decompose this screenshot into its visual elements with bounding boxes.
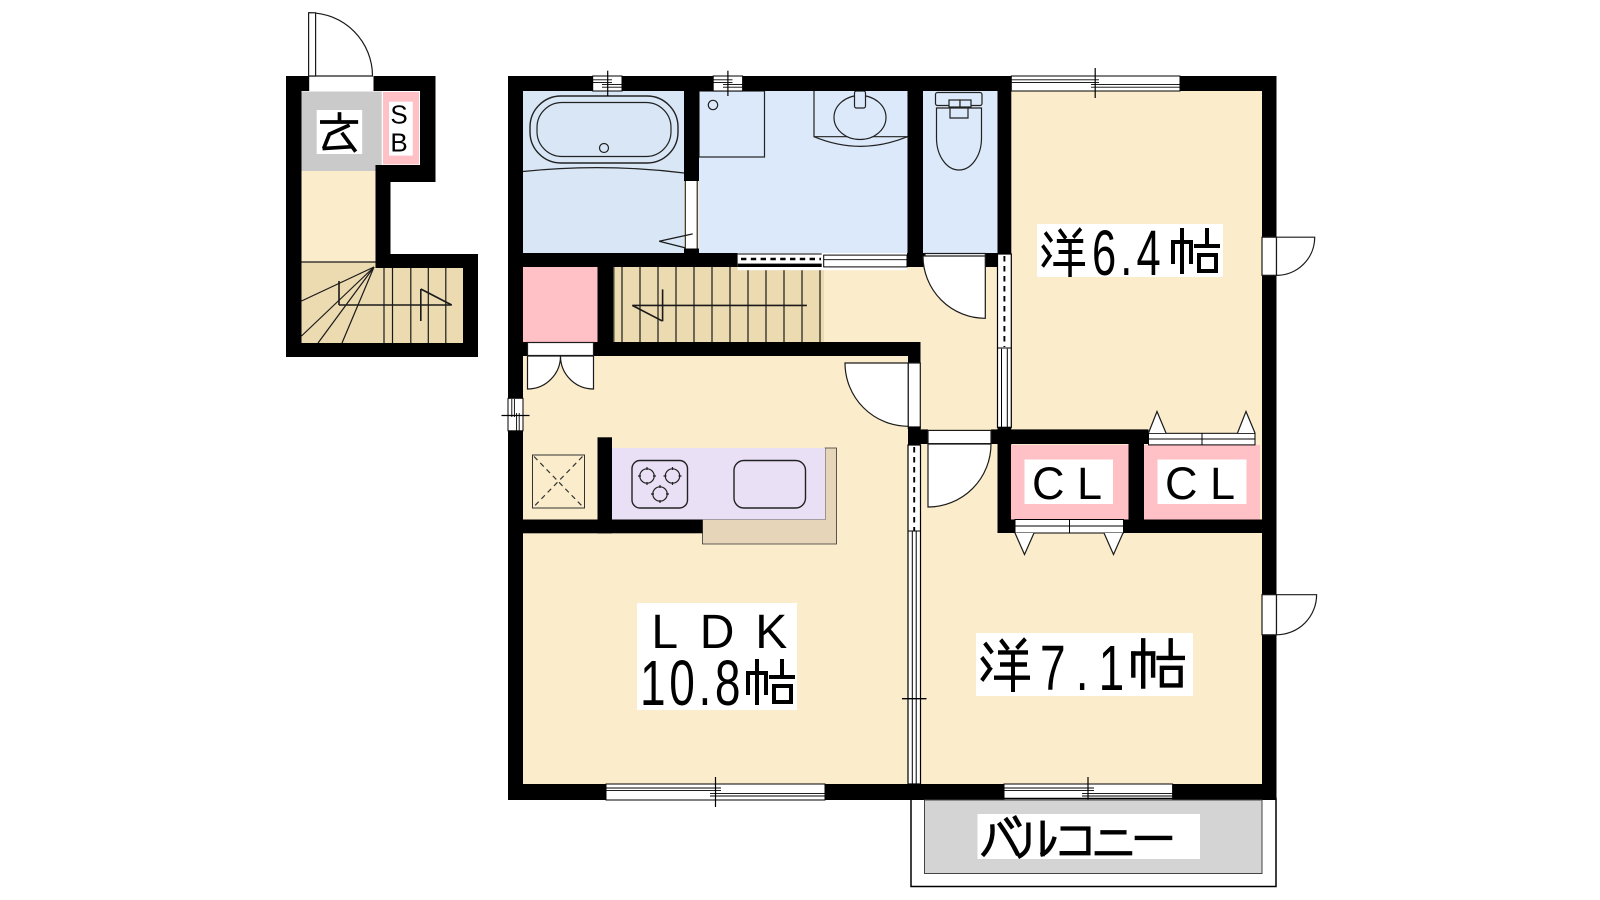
svg-text:B: B — [390, 128, 407, 158]
svg-text:K: K — [755, 606, 787, 659]
svg-text:7.1: 7.1 — [1040, 633, 1134, 704]
svg-text:C: C — [1165, 458, 1198, 509]
svg-text:6.4: 6.4 — [1092, 217, 1165, 290]
svg-text:S: S — [390, 100, 407, 130]
svg-text:L: L — [1077, 458, 1102, 509]
svg-text:C: C — [1032, 458, 1065, 509]
svg-text:10.8: 10.8 — [640, 648, 744, 719]
svg-text:L: L — [1210, 458, 1235, 509]
